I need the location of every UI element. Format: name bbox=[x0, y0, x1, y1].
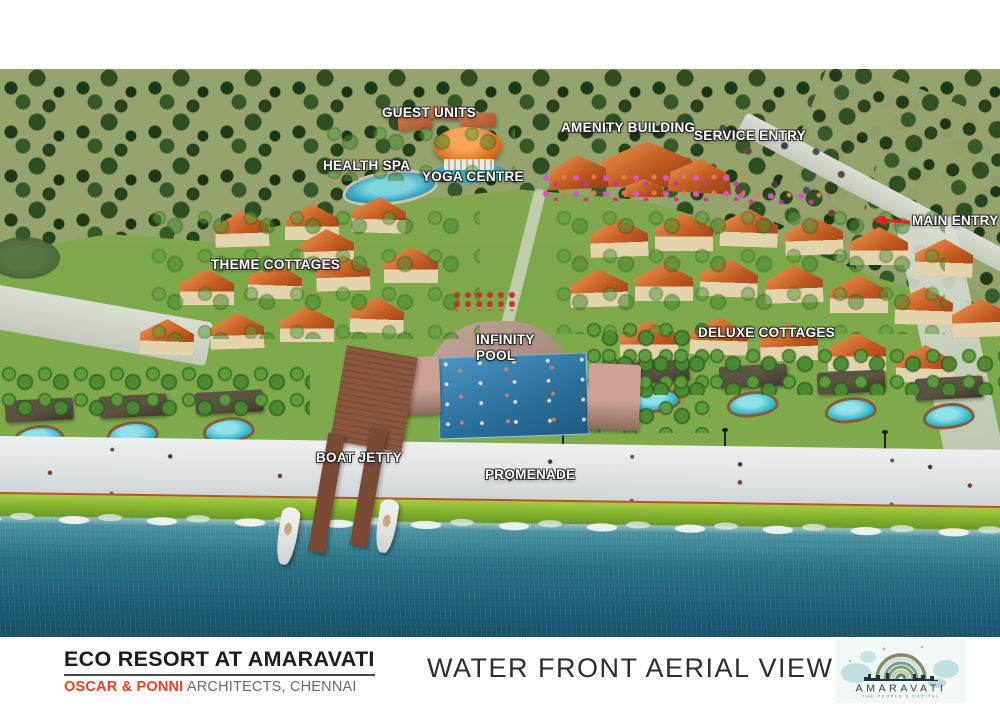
main-entry-arrow-icon bbox=[872, 213, 913, 230]
lamp-post bbox=[884, 433, 886, 449]
aerial-render: GUEST UNITS AMENITY BUILDING SERVICE ENT… bbox=[0, 69, 1000, 637]
villa-pool bbox=[824, 396, 877, 425]
label-yoga-centre: YOGA CENTRE bbox=[422, 169, 524, 184]
pool-pavilion bbox=[587, 363, 641, 431]
infinity-pool-water bbox=[437, 352, 590, 439]
project-title-block: ECO RESORT AT AMARAVATI OSCAR & PONNI AR… bbox=[64, 647, 375, 695]
title-bar: ECO RESORT AT AMARAVATI OSCAR & PONNI AR… bbox=[0, 637, 1000, 707]
label-theme-cottages: THEME COTTAGES bbox=[211, 257, 340, 272]
amaravati-logo: AMARAVATI THE PEOPLE'S CAPITAL bbox=[836, 639, 966, 703]
view-title: WATER FRONT AERIAL VIEW bbox=[427, 653, 834, 684]
firm-line: OSCAR & PONNI ARCHITECTS, CHENNAI bbox=[64, 679, 375, 695]
label-amenity-building: AMENITY BUILDING bbox=[561, 120, 695, 135]
label-service-entry: SERVICE ENTRY bbox=[694, 128, 806, 143]
lamp-post bbox=[724, 431, 726, 447]
label-deluxe-cottages: DELUXE COTTAGES bbox=[698, 325, 835, 340]
label-boat-jetty: BOAT JETTY bbox=[316, 450, 402, 465]
label-promenade: PROMENADE bbox=[485, 467, 575, 482]
presentation-slide: GUEST UNITS AMENITY BUILDING SERVICE ENT… bbox=[0, 0, 1000, 707]
palm-grove bbox=[0, 365, 310, 417]
palm-grove bbox=[600, 347, 1000, 395]
logo-tagline: THE PEOPLE'S CAPITAL bbox=[862, 694, 940, 699]
label-infinity-pool: INFINITY POOL bbox=[476, 332, 550, 364]
palm-grove bbox=[150, 209, 480, 339]
project-title: ECO RESORT AT AMARAVATI bbox=[64, 647, 375, 676]
palm-grove bbox=[555, 209, 945, 334]
label-guest-units: GUEST UNITS bbox=[382, 105, 476, 120]
villa-pool bbox=[922, 402, 975, 431]
label-health-spa: HEALTH SPA bbox=[323, 158, 410, 173]
flower-beds bbox=[540, 173, 745, 201]
pool-loungers bbox=[452, 291, 516, 311]
firm-suffix: ARCHITECTS, CHENNAI bbox=[183, 679, 356, 695]
flower-beds bbox=[735, 191, 830, 209]
label-main-entry: MAIN ENTRY bbox=[912, 213, 999, 228]
firm-name: OSCAR & PONNI bbox=[64, 679, 183, 695]
deluxe-cottage-roof bbox=[951, 298, 1000, 338]
